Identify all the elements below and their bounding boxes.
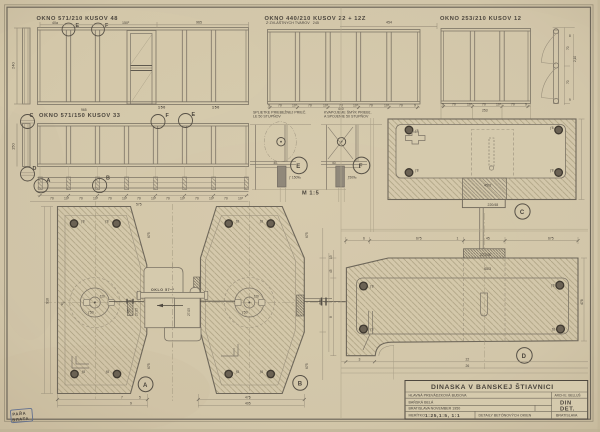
svg-text:70: 70 [79, 197, 83, 201]
svg-text:405: 405 [245, 402, 251, 406]
svg-text:45/3: 45/3 [484, 267, 491, 271]
svg-text:70: 70 [308, 103, 312, 107]
svg-text:OKLO 57⁵⁰: OKLO 57⁵⁰ [151, 287, 174, 292]
svg-text:HLAVNÁ PREVÁDZKOVÁ BUDOVA: HLAVNÁ PREVÁDZKOVÁ BUDOVA [409, 393, 468, 397]
svg-text:BAŇSKÁ BELÁ: BAŇSKÁ BELÁ [409, 400, 434, 404]
svg-text:9: 9 [525, 102, 527, 106]
svg-text:ƒ8: ƒ8 [81, 220, 85, 224]
svg-text:9: 9 [130, 402, 132, 406]
svg-text:DETAILY BETÓNOVÝCH OKIEN: DETAILY BETÓNOVÝCH OKIEN [479, 413, 532, 418]
svg-text:10⁵: 10⁵ [323, 103, 329, 107]
svg-text:675: 675 [147, 363, 151, 369]
svg-text:9: 9 [268, 103, 270, 107]
svg-text:ƒ8: ƒ8 [82, 370, 86, 374]
svg-text:ƒ50: ƒ50 [88, 311, 94, 315]
svg-text:Z·ZVLÁŠTNYCH TVAROV 245: Z·ZVLÁŠTNYCH TVAROV 245 [266, 20, 319, 25]
svg-text:45: 45 [329, 269, 333, 273]
svg-text:ƒ8: ƒ8 [106, 370, 110, 374]
svg-text:475: 475 [245, 395, 251, 399]
svg-text:ƒ8: ƒ8 [370, 328, 374, 332]
svg-text:10⁵: 10⁵ [292, 103, 298, 107]
svg-text:10⁵: 10⁵ [180, 197, 186, 201]
svg-text:E: E [76, 23, 80, 29]
svg-text:D: D [33, 166, 38, 172]
svg-text:70: 70 [482, 102, 486, 106]
svg-text:70: 70 [566, 46, 570, 50]
svg-text:220/48: 220/48 [480, 253, 491, 257]
svg-text:B: B [106, 176, 111, 182]
svg-text:70: 70 [399, 103, 403, 107]
svg-text:9: 9 [442, 102, 444, 106]
svg-text:9: 9 [569, 98, 571, 102]
svg-text:LE 50 STUPŇOV: LE 50 STUPŇOV [253, 115, 281, 119]
svg-text:575: 575 [136, 203, 142, 207]
svg-text:9: 9 [414, 103, 416, 107]
svg-text:MERÍTKO: MERÍTKO [409, 414, 426, 418]
svg-text:DET.: DET. [560, 406, 575, 412]
svg-text:ƒ8: ƒ8 [551, 284, 555, 288]
svg-text:8: 8 [329, 316, 333, 318]
svg-text:253: 253 [482, 109, 488, 113]
svg-text:A: A [47, 178, 52, 184]
svg-text:70: 70 [566, 80, 570, 84]
svg-text:ƒ8: ƒ8 [260, 220, 264, 224]
svg-text:ƒ8: ƒ8 [552, 328, 556, 332]
svg-text:OKNO 253/210 KUSOV 12: OKNO 253/210 KUSOV 12 [440, 16, 522, 22]
svg-text:ƒ8: ƒ8 [370, 285, 374, 289]
svg-text:OKNO 571/210 KUSOV 48: OKNO 571/210 KUSOV 48 [37, 16, 119, 22]
svg-text:1:25,1:5, 1:1: 1:25,1:5, 1:1 [425, 413, 460, 419]
svg-text:150²: 150² [122, 21, 130, 25]
svg-text:ƒ20: ƒ20 [254, 295, 260, 299]
svg-text:70: 70 [511, 102, 515, 106]
svg-text:10⁵: 10⁵ [384, 103, 390, 107]
svg-text:10⁵: 10⁵ [151, 197, 157, 201]
svg-text:70: 70 [50, 197, 54, 201]
svg-text:675: 675 [147, 232, 151, 238]
svg-text:13: 13 [329, 255, 333, 259]
svg-text:70: 70 [195, 197, 199, 201]
svg-text:10⁵: 10⁵ [64, 197, 70, 201]
svg-text:A SPOJENIE 50 STUPŇOV: A SPOJENIE 50 STUPŇOV [324, 115, 369, 119]
svg-text:D: D [522, 354, 527, 360]
svg-text:ƒ20: ƒ20 [100, 295, 106, 299]
svg-text:70: 70 [137, 197, 141, 201]
svg-text:E: E [296, 164, 301, 170]
svg-text:ƒ50‰: ƒ50‰ [348, 176, 358, 180]
svg-text:70: 70 [224, 197, 228, 201]
svg-text:6: 6 [363, 236, 365, 240]
svg-text:10⁵: 10⁵ [122, 197, 128, 201]
svg-text:10⁵: 10⁵ [209, 197, 215, 201]
svg-text:E: E [192, 112, 196, 118]
svg-text:F: F [359, 164, 363, 170]
svg-text:10⁵: 10⁵ [353, 103, 359, 107]
svg-text:ƒ50: ƒ50 [242, 311, 248, 315]
svg-text:45°: 45° [127, 307, 131, 313]
svg-text:10⁵: 10⁵ [496, 102, 502, 106]
svg-text:45/3: 45/3 [484, 184, 491, 188]
svg-text:70: 70 [278, 103, 282, 107]
svg-text:ƒ8: ƒ8 [550, 169, 554, 173]
svg-text:675: 675 [548, 236, 554, 240]
svg-text:10⁵: 10⁵ [238, 197, 244, 201]
svg-text:ƒ8: ƒ8 [415, 169, 419, 173]
svg-text:150: 150 [158, 106, 166, 110]
svg-text:SPLIETKE PRIEBEŽNEJ PRIEČ.: SPLIETKE PRIEBEŽNEJ PRIEČ. [253, 109, 306, 114]
svg-text:150: 150 [11, 143, 16, 150]
svg-text:5: 5 [139, 395, 141, 399]
svg-text:DINASKA V BANSKEJ ŠTIAVNICI: DINASKA V BANSKEJ ŠTIAVNICI [431, 382, 554, 391]
svg-text:A: A [143, 383, 148, 389]
svg-text:ƒ8: ƒ8 [236, 370, 240, 374]
svg-text:27.05: 27.05 [135, 308, 139, 316]
svg-text:2,10: 2,10 [573, 56, 577, 62]
svg-text:ƒ8: ƒ8 [236, 220, 240, 224]
svg-text:10⁵: 10⁵ [93, 197, 99, 201]
svg-text:965: 965 [81, 108, 87, 112]
svg-text:C: C [30, 113, 35, 119]
svg-text:220/48: 220/48 [488, 203, 499, 207]
svg-text:7: 7 [121, 395, 123, 399]
svg-text:BRATISLAVA: BRATISLAVA [556, 413, 578, 417]
svg-text:ARCH E. BELLUŠ: ARCH E. BELLUŠ [555, 392, 581, 397]
svg-text:8: 8 [569, 34, 571, 38]
svg-text:22: 22 [466, 358, 470, 362]
svg-text:1: 1 [457, 236, 459, 240]
svg-text:B: B [298, 382, 303, 388]
svg-text:M 1:5: M 1:5 [302, 191, 319, 197]
svg-text:150: 150 [212, 106, 220, 110]
svg-text:675: 675 [416, 236, 422, 240]
svg-text:ƒ 150‰: ƒ 150‰ [289, 176, 301, 180]
svg-text:ƒ8: ƒ8 [260, 370, 264, 374]
svg-text:40.: 40. [332, 161, 337, 165]
svg-text:3: 3 [359, 358, 361, 362]
svg-text:240: 240 [11, 62, 16, 69]
svg-text:40.: 40. [274, 161, 279, 165]
svg-text:BRATISLAVA NOVEMBER 1950: BRATISLAVA NOVEMBER 1950 [409, 407, 461, 411]
svg-text:70: 70 [452, 102, 456, 106]
svg-text:ƒ8: ƒ8 [550, 126, 554, 130]
svg-text:70: 70 [108, 197, 112, 201]
svg-text:OKNO 571/150 KUSOV 33: OKNO 571/150 KUSOV 33 [39, 113, 121, 119]
svg-text:70: 70 [166, 197, 170, 201]
svg-text:C: C [520, 210, 525, 216]
svg-text:27.05: 27.05 [187, 308, 191, 316]
svg-text:478: 478 [319, 299, 323, 305]
svg-text:45: 45 [486, 236, 490, 240]
svg-text:ƒ8: ƒ8 [105, 220, 109, 224]
svg-text:F: F [166, 113, 170, 119]
svg-text:454: 454 [386, 21, 392, 25]
svg-text:26: 26 [466, 364, 470, 368]
svg-text:F: F [105, 23, 109, 29]
svg-text:70: 70 [369, 103, 373, 107]
svg-text:910: 910 [46, 298, 50, 304]
svg-text:675: 675 [305, 363, 309, 369]
svg-text:675: 675 [305, 232, 309, 238]
svg-text:965: 965 [196, 21, 202, 25]
svg-text:478: 478 [580, 299, 584, 305]
svg-text:10⁵: 10⁵ [467, 102, 473, 106]
svg-text:40a: 40a [52, 21, 58, 25]
svg-text:KVAPOJEME ŠMÝK PRIEBĽ.: KVAPOJEME ŠMÝK PRIEBĽ. [324, 109, 372, 114]
